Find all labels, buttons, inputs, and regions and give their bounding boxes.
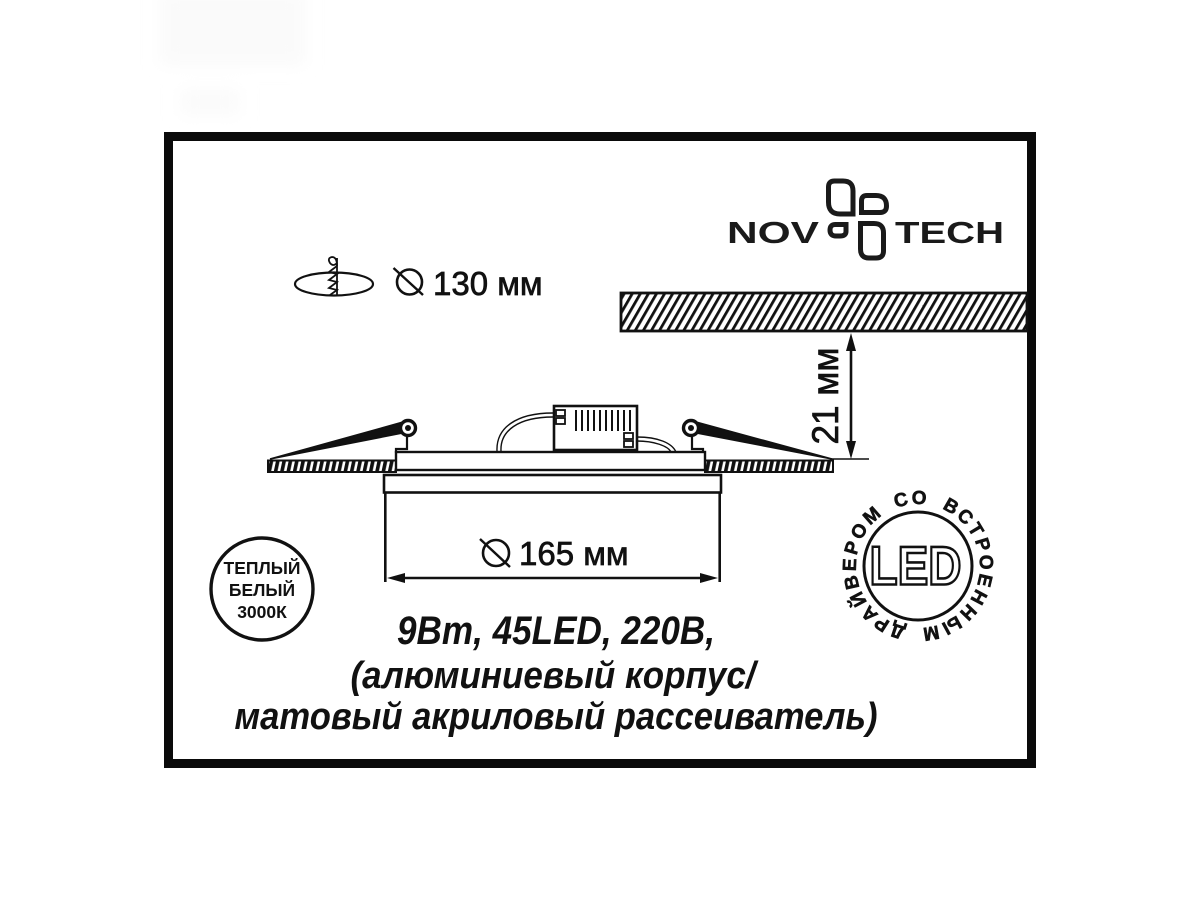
svg-text:матовый акриловый рассеиватель: матовый акриловый рассеиватель) [235, 696, 878, 738]
svg-text:БЕЛЫЙ: БЕЛЫЙ [229, 579, 295, 600]
svg-text:130 мм: 130 мм [433, 265, 543, 302]
svg-text:TECH: TECH [895, 215, 1004, 250]
svg-text:9Вm, 45LED, 220В,: 9Вm, 45LED, 220В, [397, 609, 715, 653]
svg-text:165 мм: 165 мм [519, 535, 629, 572]
svg-text:21 мм: 21 мм [805, 348, 846, 445]
svg-text:LED: LED [870, 535, 962, 597]
svg-text:3000К: 3000К [237, 602, 287, 622]
svg-text:ТЕПЛЫЙ: ТЕПЛЫЙ [224, 557, 301, 578]
svg-text:(алюминиевый корпус/: (алюминиевый корпус/ [351, 655, 759, 697]
svg-text:NOV: NOV [727, 215, 819, 250]
